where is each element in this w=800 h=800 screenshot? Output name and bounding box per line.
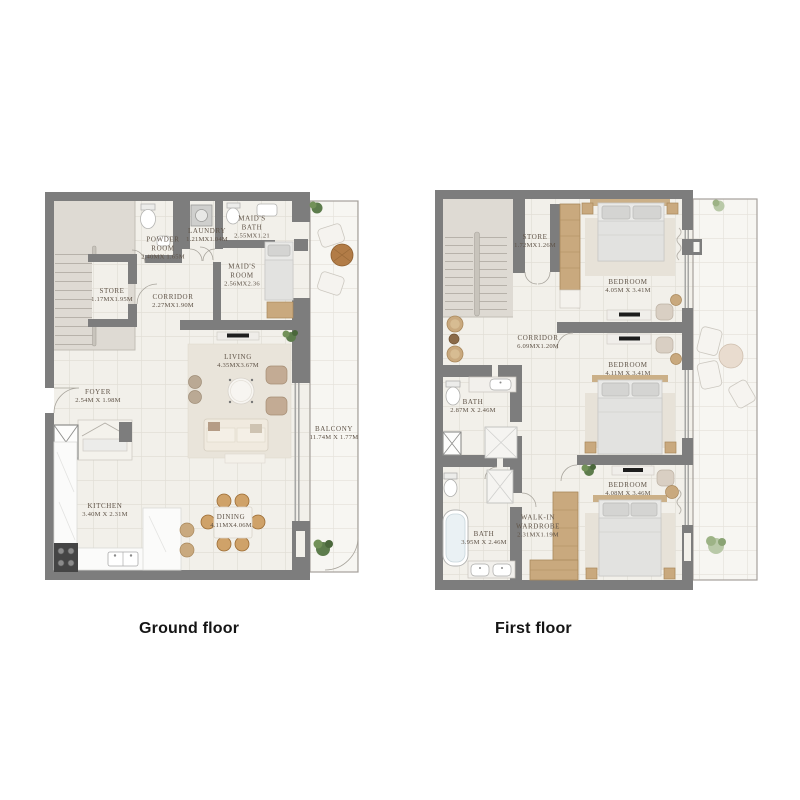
- ff-nightstand: [582, 203, 593, 214]
- ff-footstool: [586, 568, 597, 579]
- gf-armchair: [266, 397, 287, 415]
- ff-closet-strip: [560, 204, 580, 308]
- gf-coffee-table: [228, 378, 254, 404]
- gf-stove: [54, 543, 78, 572]
- ff-chair: [656, 304, 673, 320]
- gf-armchair: [266, 366, 287, 384]
- gf-throw-pillow: [208, 422, 220, 431]
- ff-wall-notch: [684, 533, 691, 561]
- ff-chair: [657, 470, 674, 486]
- gf-tv: [227, 334, 249, 338]
- gf-stool: [180, 523, 194, 537]
- gf-pouf: [189, 376, 202, 389]
- gf-foyer-closet: [78, 420, 132, 460]
- ff-footstool: [585, 442, 596, 453]
- gf-living-furniture: [188, 330, 298, 463]
- first-floor-drawing: [435, 190, 760, 590]
- ff-footstool: [665, 442, 676, 453]
- ground-floor-caption: Ground floor: [139, 620, 239, 638]
- ff-pouf: [666, 486, 679, 499]
- gf-pouf: [189, 391, 202, 404]
- ground-floor-plan: STORE1.17MX1.95M POWDER ROOM2.40MX 1.65M…: [45, 192, 360, 590]
- gf-dining-table: [214, 507, 252, 538]
- ff-terrace-table: [719, 344, 743, 368]
- gf-wall-notch: [296, 531, 305, 557]
- first-floor-plan: STORE1.72MX1.26M BEDROOM4.05M X 3.41M CO…: [435, 190, 760, 590]
- gf-maids-bed: [265, 242, 293, 318]
- ff-stairs: [443, 199, 513, 317]
- gf-stool: [180, 543, 194, 557]
- ff-pouf: [671, 354, 682, 365]
- ff-nightstand: [667, 203, 678, 214]
- first-floor-caption: First floor: [495, 620, 572, 638]
- ground-floor-drawing: [45, 192, 360, 590]
- ff-chair: [656, 337, 673, 353]
- ff-wall-notch: [694, 242, 700, 252]
- gf-maids-wardrobe: [267, 302, 293, 318]
- ff-tv: [623, 468, 643, 472]
- ff-toilet: [446, 387, 460, 405]
- ff-footstool: [664, 568, 675, 579]
- ff-toilet: [444, 480, 457, 497]
- gf-island: [143, 508, 181, 570]
- ff-lift-shaft: [443, 432, 461, 455]
- gf-washer: [191, 205, 212, 226]
- gf-throw-pillow: [250, 424, 262, 433]
- ff-pouf: [671, 295, 682, 306]
